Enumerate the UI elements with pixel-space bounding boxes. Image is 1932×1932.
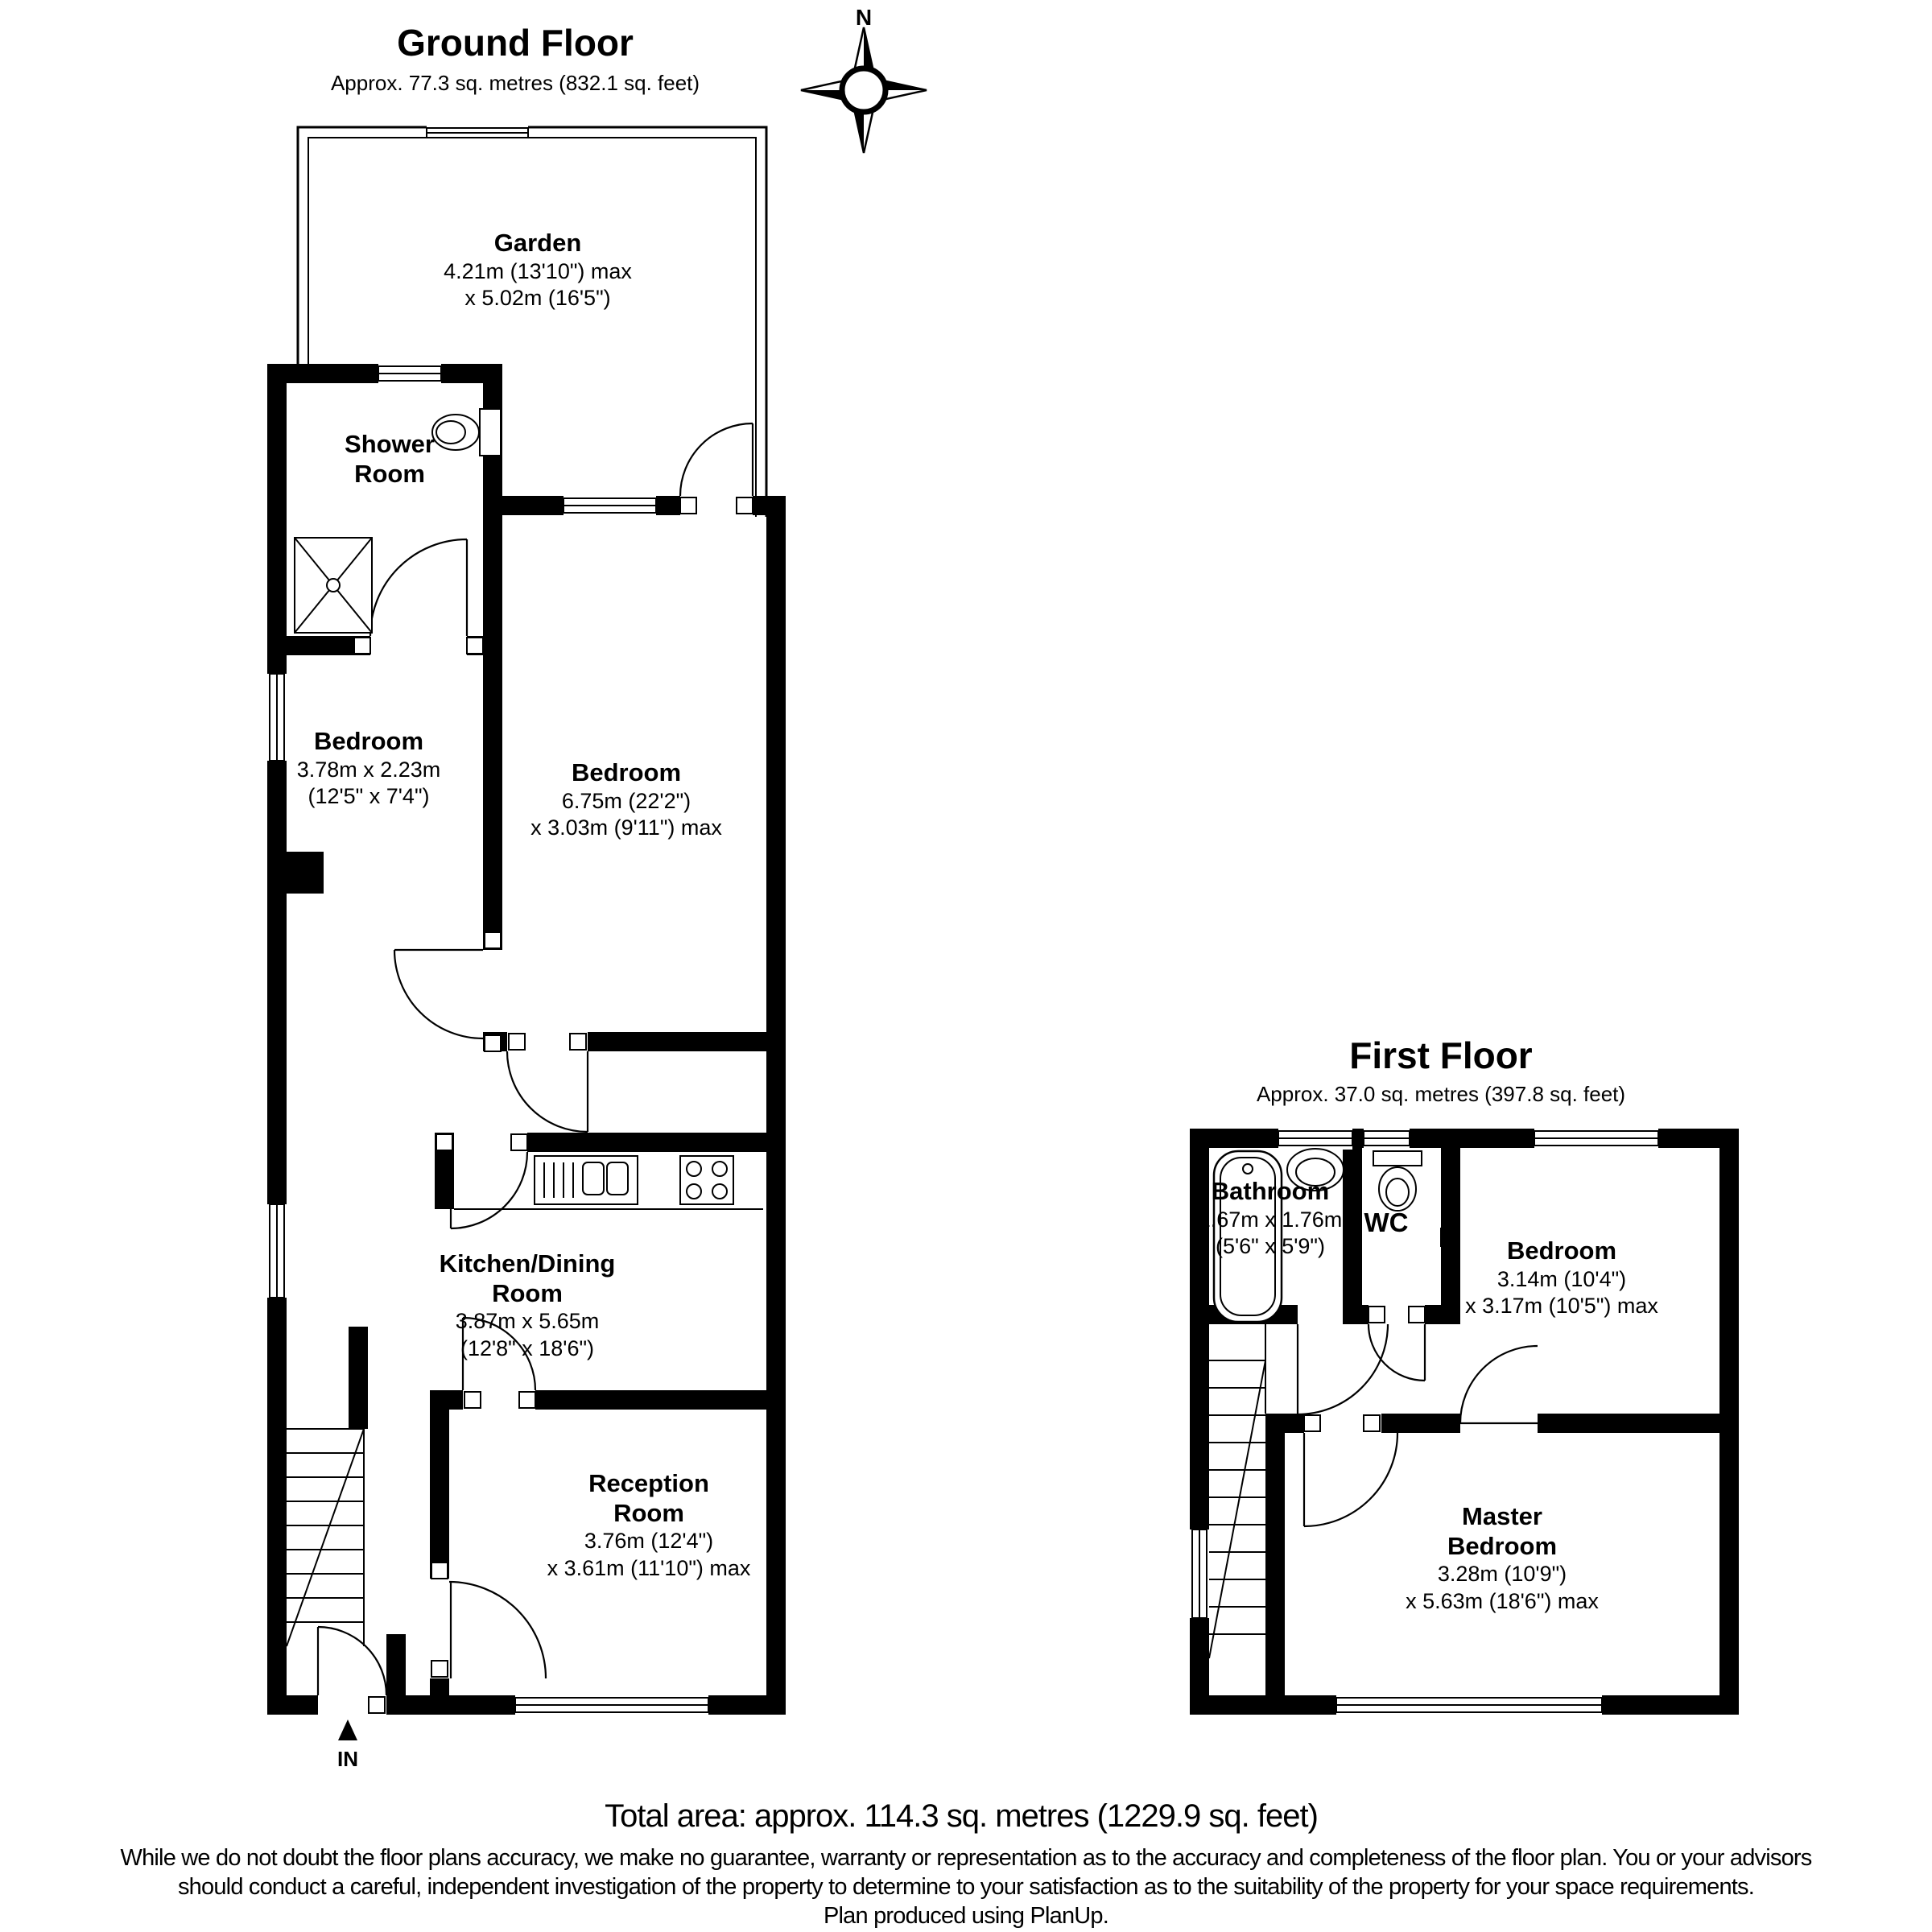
first-floor-subtitle: Approx. 37.0 sq. metres (397.8 sq. feet) bbox=[1257, 1082, 1625, 1107]
entrance-label: IN bbox=[337, 1747, 358, 1772]
room-dims: 6.75m (22'2") x 3.03m (9'11") max bbox=[473, 788, 779, 842]
room-label-wc: WC bbox=[1364, 1207, 1409, 1238]
room-label-bedroom-left: Bedroom 3.78m x 2.23m (12'5" x 7'4") bbox=[240, 727, 497, 811]
floor-plan-drawing bbox=[0, 0, 1932, 1932]
room-dims: 3.87m x 5.65m (12'8" x 18'6") bbox=[398, 1308, 656, 1362]
room-dims: 3.76m (12'4") x 3.61m (11'10") max bbox=[528, 1528, 770, 1582]
room-label-garden: Garden 4.21m (13'10") max x 5.02m (16'5"… bbox=[393, 229, 683, 312]
ground-stairs-icon bbox=[287, 1429, 364, 1646]
room-label-reception: Reception Room 3.76m (12'4") x 3.61m (11… bbox=[528, 1469, 770, 1582]
disclaimer-line-1: While we do not doubt the floor plans ac… bbox=[121, 1845, 1812, 1872]
room-label-master-bedroom: Master Bedroom 3.28m (10'9") x 5.63m (18… bbox=[1373, 1502, 1631, 1615]
room-name: Shower Room bbox=[329, 430, 450, 489]
compass-icon bbox=[801, 27, 927, 153]
kitchen-sink-icon bbox=[535, 1156, 638, 1204]
room-name: Bedroom bbox=[240, 727, 497, 757]
floor-plan-page: Ground Floor Approx. 77.3 sq. metres (83… bbox=[0, 0, 1932, 1932]
room-dims: 3.78m x 2.23m (12'5" x 7'4") bbox=[240, 757, 497, 811]
room-dims: 3.14m (10'4") x 3.17m (10'5") max bbox=[1409, 1266, 1715, 1320]
room-label-bedroom-main: Bedroom 6.75m (22'2") x 3.03m (9'11") ma… bbox=[473, 758, 779, 842]
ground-floor-title: Ground Floor bbox=[397, 21, 634, 64]
room-label-first-floor-bedroom: Bedroom 3.14m (10'4") x 3.17m (10'5") ma… bbox=[1409, 1236, 1715, 1320]
room-name: Bedroom bbox=[473, 758, 779, 788]
stove-icon bbox=[680, 1156, 733, 1204]
first-floor-title: First Floor bbox=[1349, 1034, 1532, 1077]
room-name: Kitchen/Dining Room bbox=[415, 1249, 640, 1308]
total-area-text: Total area: approx. 114.3 sq. metres (12… bbox=[605, 1798, 1318, 1835]
compass-north-label: N bbox=[856, 5, 872, 31]
room-label-bathroom: Bathroom 1.67m x 1.76m (5'6" x 5'9") bbox=[1158, 1177, 1383, 1261]
room-name: Bedroom bbox=[1409, 1236, 1715, 1266]
disclaimer-line-2: should conduct a careful, independent in… bbox=[178, 1874, 1754, 1901]
disclaimer-line-3: Plan produced using PlanUp. bbox=[824, 1903, 1108, 1930]
room-label-shower-room: Shower Room bbox=[309, 430, 470, 489]
entrance-arrow-icon bbox=[338, 1719, 357, 1740]
room-dims: 4.21m (13'10") max x 5.02m (16'5") bbox=[393, 258, 683, 312]
room-dims: 3.28m (10'9") x 5.63m (18'6") max bbox=[1373, 1561, 1631, 1615]
shower-tray-icon bbox=[295, 538, 372, 633]
ground-floor-subtitle: Approx. 77.3 sq. metres (832.1 sq. feet) bbox=[331, 71, 700, 96]
room-name: Garden bbox=[393, 229, 683, 258]
room-name: Bathroom bbox=[1158, 1177, 1383, 1207]
room-name: Reception Room bbox=[564, 1469, 733, 1528]
room-label-kitchen-dining: Kitchen/Dining Room 3.87m x 5.65m (12'8"… bbox=[398, 1249, 656, 1362]
room-dims: 1.67m x 1.76m (5'6" x 5'9") bbox=[1158, 1207, 1383, 1261]
room-name: Master Bedroom bbox=[1434, 1502, 1571, 1561]
first-floor-stairs-icon bbox=[1209, 1324, 1265, 1658]
